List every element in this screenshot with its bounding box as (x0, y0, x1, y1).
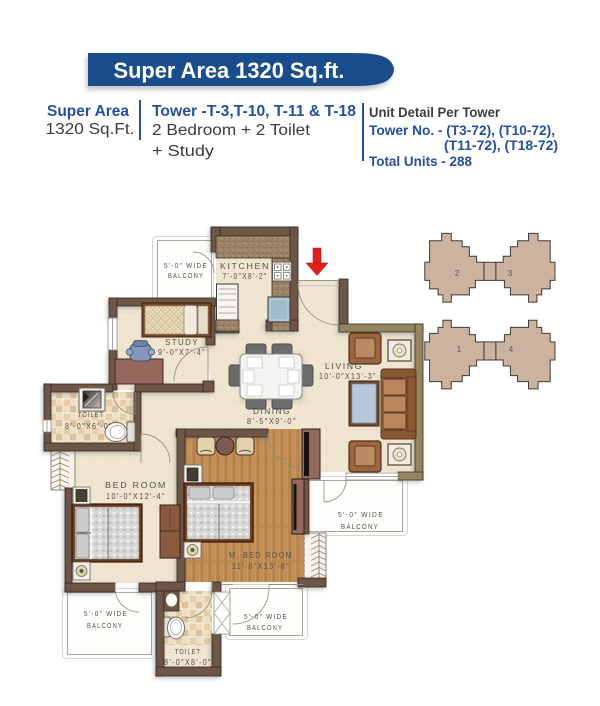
svg-text:Super Area 1320 Sq.ft.: Super Area 1320 Sq.ft. (114, 58, 345, 83)
svg-text:Super Area: Super Area (47, 103, 129, 120)
svg-text:8′-0″X8′-0″: 8′-0″X8′-0″ (164, 658, 212, 667)
svg-text:5′-0″ WIDE: 5′-0″ WIDE (84, 609, 128, 618)
svg-text:5′-0″ WIDE: 5′-0″ WIDE (244, 612, 288, 621)
svg-text:TOILET: TOILET (175, 647, 201, 656)
svg-text:BALCONY: BALCONY (341, 522, 379, 531)
svg-text:2 Bedroom + 2 Toilet: 2 Bedroom + 2 Toilet (152, 122, 311, 139)
svg-text:BALCONY: BALCONY (168, 271, 204, 280)
svg-text:BED ROOM: BED ROOM (105, 480, 167, 490)
svg-text:3: 3 (508, 269, 513, 278)
svg-text:4: 4 (509, 345, 514, 354)
svg-text:Unit Detail Per Tower: Unit Detail Per Tower (369, 105, 501, 120)
svg-text:9′-0″X7′-4″: 9′-0″X7′-4″ (158, 348, 206, 357)
svg-text:TOILET: TOILET (78, 410, 104, 419)
svg-text:11′-0″X13′-8″: 11′-0″X13′-8″ (232, 562, 290, 571)
svg-text:8′-0″X6′-0″: 8′-0″X6′-0″ (65, 422, 113, 431)
svg-text:8′-5″X9′-0″: 8′-5″X9′-0″ (247, 417, 297, 426)
svg-text:BALCONY: BALCONY (87, 621, 123, 630)
svg-text:2: 2 (455, 269, 460, 278)
svg-text:DINING: DINING (253, 406, 291, 416)
svg-text:STUDY: STUDY (165, 337, 199, 347)
svg-text:10′-0″X12′-4″: 10′-0″X12′-4″ (106, 492, 166, 501)
svg-text:(T11-72), (T18-72): (T11-72), (T18-72) (444, 138, 558, 153)
svg-text:5′-0″ WIDE: 5′-0″ WIDE (338, 510, 384, 519)
svg-text:5′-0″ WIDE: 5′-0″ WIDE (164, 261, 208, 270)
svg-text:7′-0″X8′-2″: 7′-0″X8′-2″ (223, 272, 268, 281)
svg-text:Tower -T-3,T-10, T-11 & T-18: Tower -T-3,T-10, T-11 & T-18 (152, 103, 356, 120)
svg-text:Total Units - 288: Total Units - 288 (369, 154, 472, 169)
svg-text:BALCONY: BALCONY (247, 623, 283, 632)
svg-text:1: 1 (457, 345, 462, 354)
svg-text:1320 Sq.Ft.: 1320 Sq.Ft. (46, 121, 135, 138)
svg-text:10′-0″X13′-3″: 10′-0″X13′-3″ (319, 372, 377, 381)
svg-text:Tower No. - (T3-72), (T10-72),: Tower No. - (T3-72), (T10-72), (369, 123, 555, 138)
svg-text:M. BED ROOM: M. BED ROOM (229, 550, 293, 560)
svg-text:LIVING: LIVING (325, 361, 363, 371)
svg-text:KITCHEN: KITCHEN (220, 261, 270, 271)
svg-text:+ Study: + Study (152, 143, 214, 160)
